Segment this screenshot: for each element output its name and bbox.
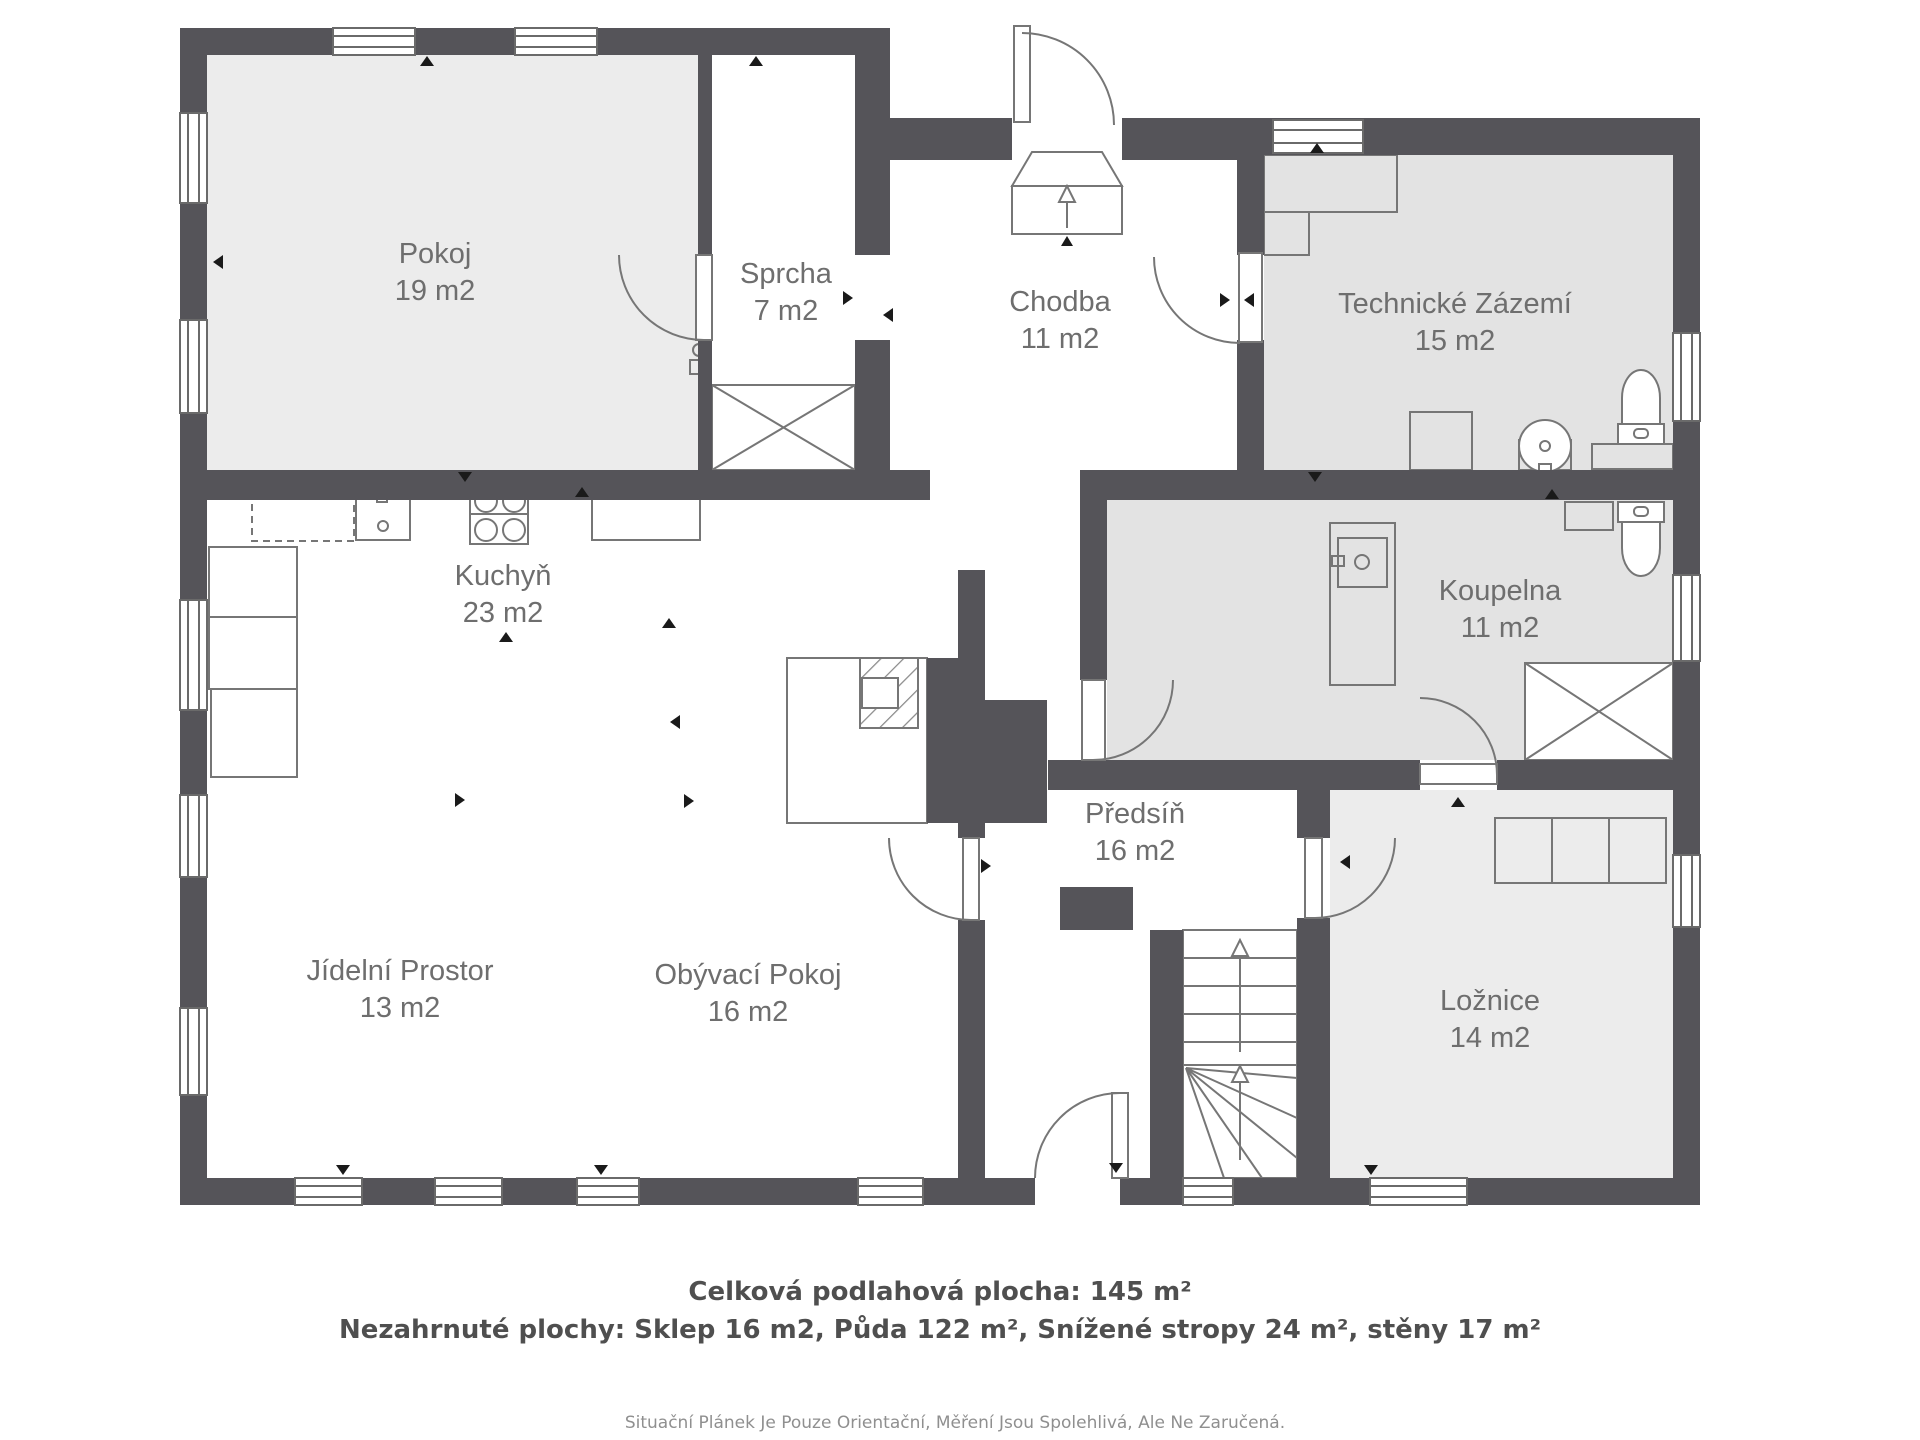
room-loznice-floor [1330, 790, 1673, 1178]
label-obyvaci-area: 16 m2 [708, 996, 789, 1028]
label-pokoj: Pokoj [399, 238, 472, 270]
window [180, 113, 207, 203]
label-kuchyn-area: 23 m2 [463, 597, 544, 629]
window [180, 1008, 207, 1095]
fireplace-icon [787, 658, 927, 823]
label-predsin: Předsíň [1085, 798, 1185, 830]
window [180, 600, 207, 710]
opening-sprcha-chodba [855, 255, 890, 340]
toilet-icon [1618, 502, 1664, 576]
floorplan-canvas: Pokoj 19 m2 Sprcha 7 m2 Chodba 11 m2 Tec… [0, 0, 1920, 1440]
summary-block: Celková podlahová plocha: 145 m² Nezahrn… [339, 1277, 1541, 1433]
label-chodba-area: 11 m2 [1021, 323, 1099, 355]
label-tz: Technické Zázemí [1338, 288, 1572, 320]
disclaimer-text: Situační Plánek Je Pouze Orientační, Měř… [625, 1413, 1285, 1433]
window [1673, 855, 1700, 927]
window [515, 28, 597, 55]
window [295, 1178, 362, 1205]
entrance-door [1012, 26, 1122, 246]
label-sprcha: Sprcha [740, 258, 833, 290]
window [1183, 1178, 1233, 1205]
window [858, 1178, 923, 1205]
label-koupelna-area: 11 m2 [1461, 612, 1539, 644]
summary-total-area: Celková podlahová plocha: 145 m² [688, 1277, 1191, 1307]
summary-excluded-areas: Nezahrnuté plochy: Sklep 16 m2, Půda 122… [339, 1314, 1541, 1345]
window [180, 795, 207, 877]
label-jidelni-area: 13 m2 [360, 992, 441, 1024]
label-sprcha-area: 7 m2 [754, 295, 818, 327]
shower-icon [690, 344, 855, 470]
label-pokoj-area: 19 m2 [395, 275, 476, 307]
window [1370, 1178, 1467, 1205]
shower-icon [1525, 663, 1673, 760]
label-loznice-area: 14 m2 [1450, 1022, 1531, 1054]
window [180, 320, 207, 413]
door-obyvaci-predsin [889, 838, 985, 920]
staircase [1183, 930, 1297, 1178]
kitchen-counter [209, 484, 700, 777]
label-predsin-area: 16 m2 [1095, 835, 1176, 867]
window [435, 1178, 502, 1205]
label-koupelna: Koupelna [1439, 575, 1562, 607]
label-jidelni: Jídelní Prostor [307, 955, 494, 987]
kitchen-cabinet [211, 689, 297, 777]
label-chodba: Chodba [1009, 286, 1111, 318]
label-kuchyn: Kuchyň [455, 560, 552, 592]
window [577, 1178, 639, 1205]
label-tz-area: 15 m2 [1415, 325, 1496, 357]
kitchen-cabinet [209, 547, 297, 617]
window [1673, 333, 1700, 421]
label-obyvaci: Obývací Pokoj [655, 959, 842, 991]
window [1673, 575, 1700, 661]
toilet-icon [1618, 370, 1664, 444]
kitchen-cabinet [209, 617, 297, 689]
floorplan-page: Pokoj 19 m2 Sprcha 7 m2 Chodba 11 m2 Tec… [0, 0, 1920, 1440]
window [333, 28, 415, 55]
door-predsin-exterior [1035, 1093, 1128, 1205]
label-loznice: Ložnice [1440, 985, 1540, 1017]
